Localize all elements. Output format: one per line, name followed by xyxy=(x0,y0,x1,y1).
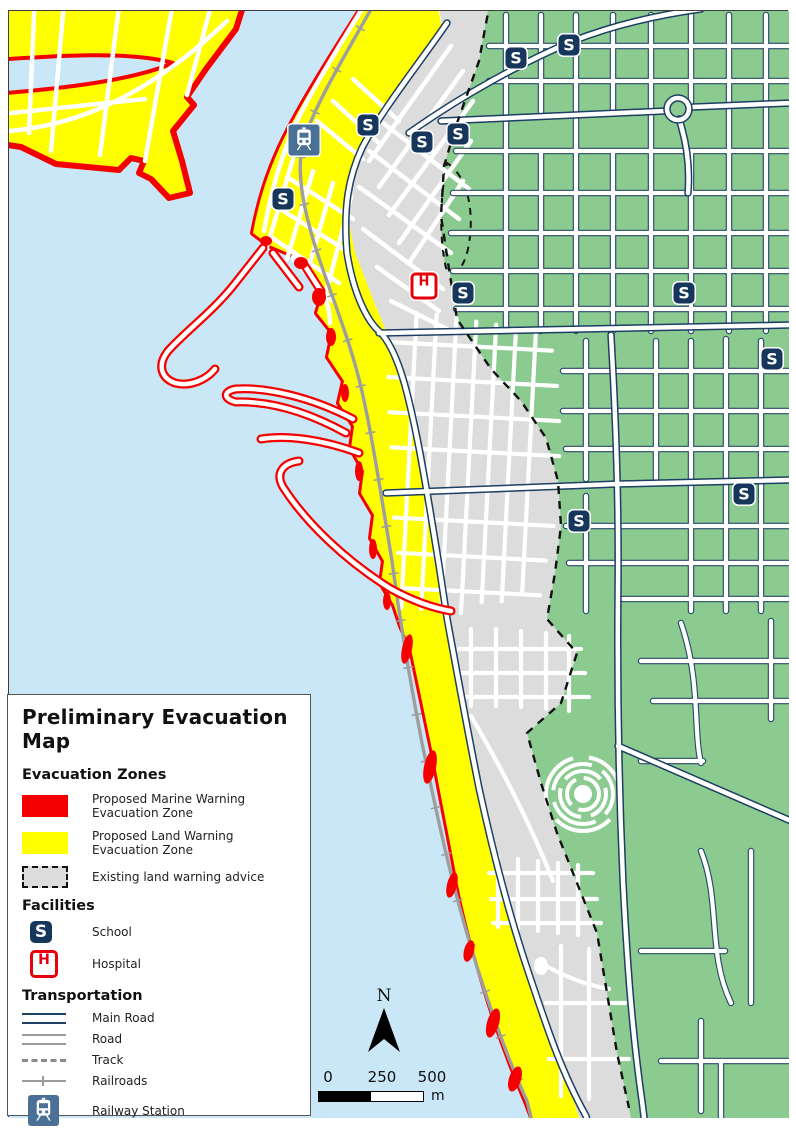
legend-heading-2: Transportation xyxy=(22,988,298,1004)
school-marker-badge: S xyxy=(559,35,580,56)
marine-zone-swatch xyxy=(22,795,68,817)
hospital-icon: H xyxy=(30,950,58,978)
legend-item-label: Proposed Marine Warning Evacuation Zone xyxy=(72,792,298,820)
scale-bar-filled xyxy=(319,1092,371,1101)
school-marker-badge: S xyxy=(448,124,469,145)
legend-item: Road xyxy=(22,1032,298,1046)
legend-item-label: Existing land warning advice xyxy=(72,870,264,884)
school-marker: S xyxy=(559,35,580,56)
school-marker-badge: S xyxy=(453,283,474,304)
evacuation-map-page: { "legend": { "title": "Preliminary Evac… xyxy=(0,0,796,1129)
railway-station-marker-badge xyxy=(289,125,320,156)
school-marker: S xyxy=(506,48,527,69)
railroad-line xyxy=(22,1080,66,1082)
train-icon xyxy=(30,1097,57,1124)
school-marker: S xyxy=(762,349,783,370)
school-marker-badge: S xyxy=(734,484,755,505)
track-line xyxy=(22,1059,66,1062)
open-space xyxy=(534,957,548,975)
school-marker-badge: S xyxy=(762,349,783,370)
legend-heading-0: Evacuation Zones xyxy=(22,767,298,783)
scale-bar-graphic: m xyxy=(318,1091,424,1102)
legend-item-label: Railroads xyxy=(72,1074,147,1088)
railway-station-marker xyxy=(289,125,320,156)
school-marker-badge: S xyxy=(358,115,379,136)
scale-ticks: 0 250 500 xyxy=(318,1068,424,1086)
school-marker-badge: S xyxy=(412,132,433,153)
school-marker-badge: S xyxy=(506,48,527,69)
land-zone-swatch xyxy=(22,832,68,854)
school-marker-badge: S xyxy=(569,511,590,532)
school-marker-badge: S xyxy=(674,283,695,304)
scale-tick-0: 0 xyxy=(323,1068,333,1086)
school-marker: S xyxy=(734,484,755,505)
legend-item-label: Road xyxy=(72,1032,122,1046)
road-line xyxy=(22,1034,66,1045)
school-marker: S xyxy=(453,283,474,304)
existing-advice-swatch xyxy=(22,866,68,888)
north-arrow: N xyxy=(362,986,406,1058)
hospital-marker-badge: H xyxy=(411,273,438,300)
legend-item: Track xyxy=(22,1053,298,1067)
scale-tick-250: 250 xyxy=(368,1068,397,1086)
north-arrow-icon xyxy=(362,1006,406,1054)
legend-item: Proposed Marine Warning Evacuation Zone xyxy=(22,792,298,820)
train-icon xyxy=(291,127,318,154)
legend-item: Railway Station xyxy=(22,1095,298,1126)
legend-item: Main Road xyxy=(22,1011,298,1025)
school-marker: S xyxy=(448,124,469,145)
legend-item: Railroads xyxy=(22,1074,298,1088)
legend-item-label: Hospital xyxy=(72,957,141,971)
legend-panel: Preliminary Evacuation Map Evacuation Zo… xyxy=(7,694,311,1116)
main-road-line xyxy=(22,1013,66,1024)
scale-bar: 0 250 500 m xyxy=(318,1068,424,1102)
school-marker: S xyxy=(273,189,294,210)
scale-tick-500: 500 xyxy=(418,1068,447,1086)
legend-item: Existing land warning advice xyxy=(22,866,298,888)
school-marker: S xyxy=(569,511,590,532)
scale-unit: m xyxy=(431,1088,445,1104)
school-icon: S xyxy=(30,921,52,943)
hospital-marker: H xyxy=(411,273,438,300)
legend-title: Preliminary Evacuation Map xyxy=(22,705,298,753)
railway-station-icon xyxy=(28,1095,59,1126)
legend-item: Proposed Land Warning Evacuation Zone xyxy=(22,829,298,857)
legend-item: HHospital xyxy=(22,950,298,978)
legend-item: SSchool xyxy=(22,921,298,943)
legend-item-label: Track xyxy=(72,1053,123,1067)
school-marker: S xyxy=(412,132,433,153)
legend-item-label: Proposed Land Warning Evacuation Zone xyxy=(72,829,298,857)
legend-item-label: Main Road xyxy=(72,1011,155,1025)
school-marker-badge: S xyxy=(273,189,294,210)
legend-heading-1: Facilities xyxy=(22,898,298,914)
school-marker: S xyxy=(674,283,695,304)
legend-item-label: Railway Station xyxy=(72,1104,185,1118)
north-label: N xyxy=(362,986,406,1006)
school-marker: S xyxy=(358,115,379,136)
legend-item-label: School xyxy=(72,925,132,939)
